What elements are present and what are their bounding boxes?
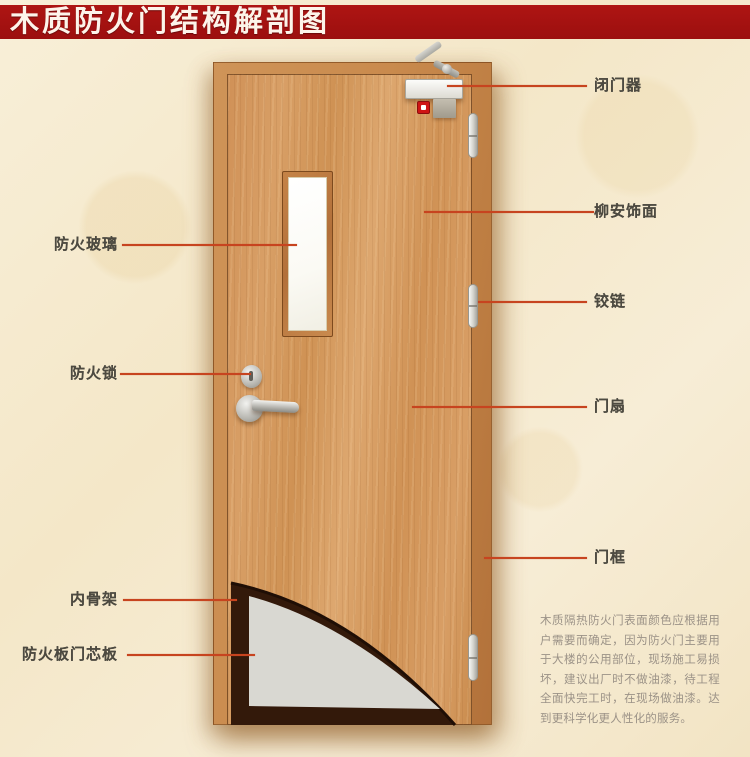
hinge-bottom [468, 634, 478, 681]
alarm-indicator-light [417, 101, 430, 114]
vision-panel-frame [282, 171, 333, 337]
callout-line-hinge [478, 301, 587, 303]
fire-glass-pane [288, 177, 327, 331]
hinge-top [468, 113, 478, 158]
page-background: 木质防火门结构解剖图 闭门器 柳安饰面 铰链 门扇 门框 防火玻璃 防火锁 内骨… [0, 0, 750, 757]
label-door-leaf: 门扇 [594, 398, 626, 416]
label-hinge: 铰链 [594, 293, 626, 311]
label-fire-glass: 防火玻璃 [0, 236, 118, 254]
callout-line-fire-board-core [127, 654, 255, 656]
callout-line-inner-skeleton [123, 599, 237, 601]
label-door-closer: 闭门器 [594, 77, 642, 95]
door-closer-device [405, 79, 463, 99]
label-fire-lock: 防火锁 [0, 365, 118, 383]
hinge-middle [468, 284, 478, 328]
label-door-frame: 门框 [594, 549, 626, 567]
callout-line-fire-lock [120, 373, 251, 375]
callout-line-lauan-veneer [424, 211, 594, 213]
callout-line-fire-glass [122, 244, 297, 246]
page-title: 木质防火门结构解剖图 [0, 5, 330, 39]
label-inner-skeleton: 内骨架 [0, 591, 118, 609]
callout-line-door-leaf [412, 406, 587, 408]
product-description: 木质隔热防火门表面颜色应根据用户需要而确定，因为防火门主要用于大楼的公用部位，现… [540, 612, 720, 729]
fire-lock-cylinder [241, 365, 262, 388]
label-lauan-veneer: 柳安饰面 [594, 203, 658, 221]
junction-box [433, 99, 456, 118]
callout-line-door-closer [447, 85, 587, 87]
callout-line-door-frame [484, 557, 587, 559]
label-fire-board-core: 防火板门芯板 [0, 646, 118, 664]
door-closer-pivot [442, 64, 452, 74]
title-banner: 木质防火门结构解剖图 [0, 5, 750, 39]
